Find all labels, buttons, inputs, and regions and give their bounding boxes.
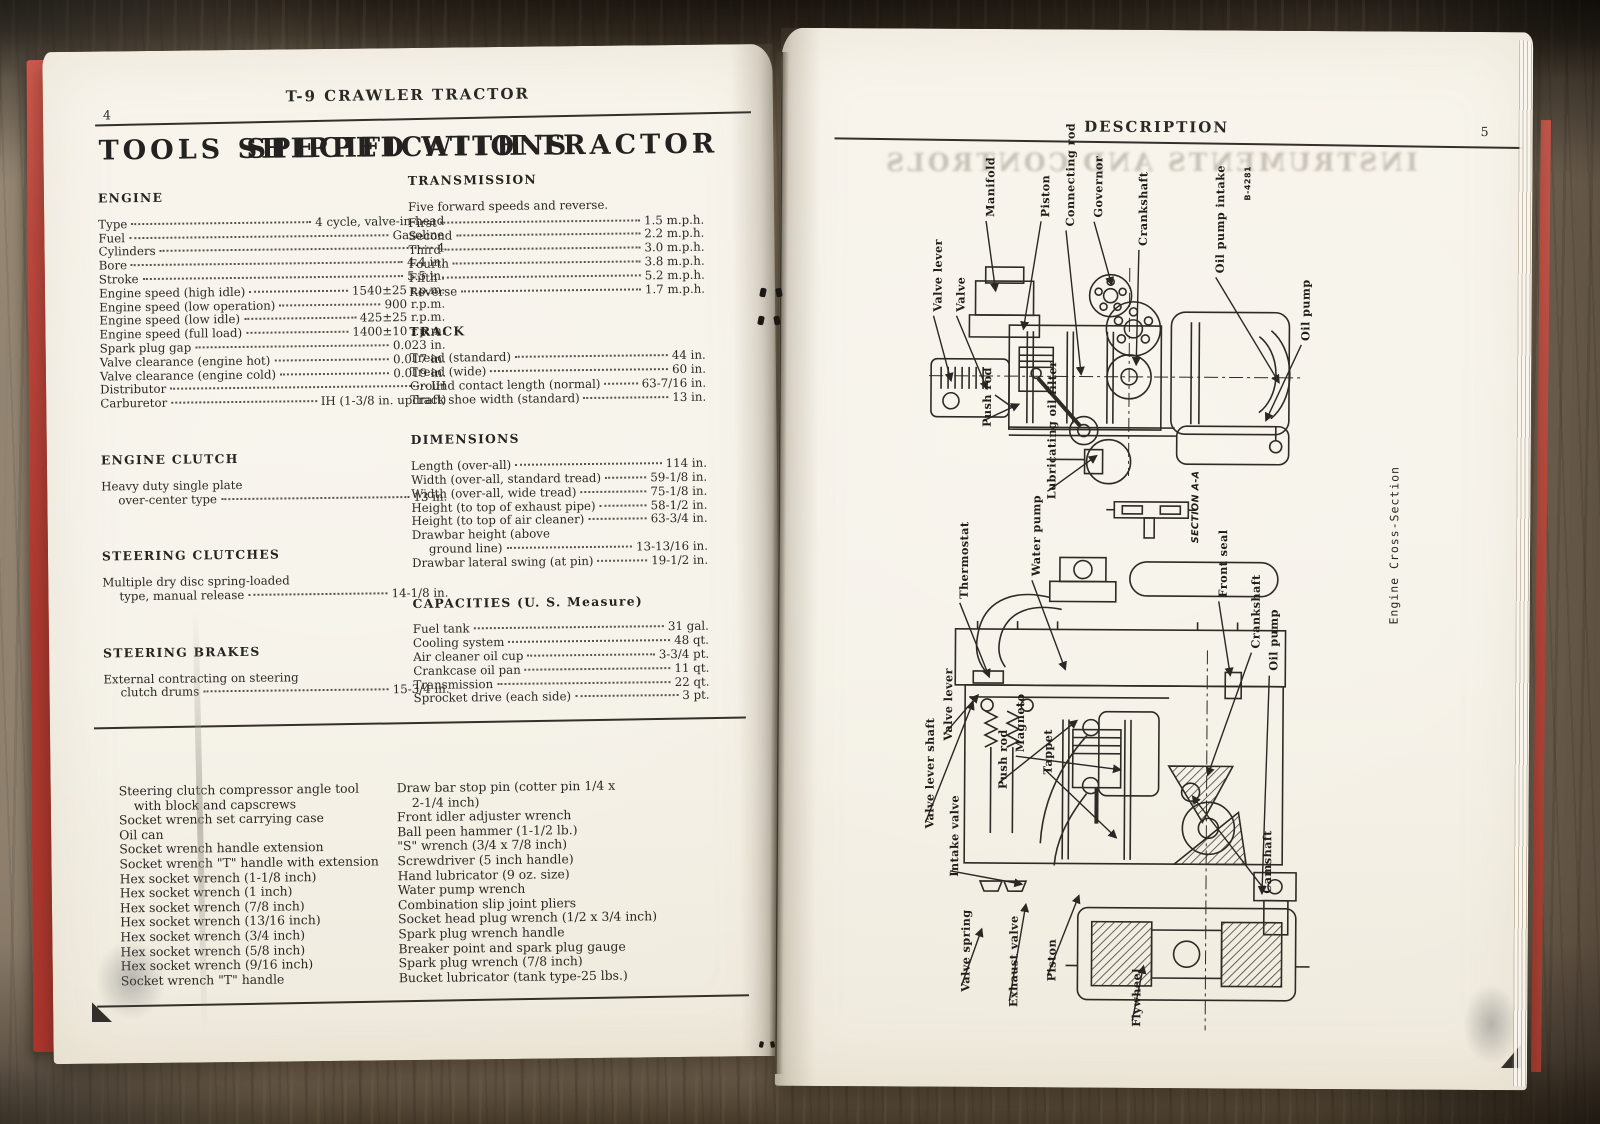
spec-heading: TRANSMISSION	[408, 171, 704, 188]
dot-leader	[506, 545, 632, 548]
spec-intro: Five forward speeds and reverse.	[408, 197, 704, 214]
diagram-overlay: ManifoldPistonConnecting rodGovernorCran…	[775, 28, 1533, 1091]
dot-leader	[129, 234, 389, 239]
dot-leader	[604, 382, 637, 384]
spec-label: Crankcase oil pan	[413, 664, 521, 679]
spec-value: 19-1/2 in.	[651, 553, 708, 567]
dot-leader	[445, 247, 640, 251]
dot-leader	[474, 625, 664, 629]
tools-rule-top	[94, 717, 746, 730]
diagram-label-tappet: Tappet	[1042, 729, 1054, 774]
spec-row: Reverse1.7 m.p.h.	[409, 282, 705, 299]
diagram-label-camshaft: Camshaft	[1261, 830, 1273, 894]
spec-section: STEERING CLUTCHESMultiple dry disc sprin…	[102, 546, 449, 604]
spec-heading: ENGINE CLUTCH	[101, 450, 447, 468]
spec-heading: TRACK	[409, 322, 705, 339]
spec-label: clutch drums	[120, 686, 199, 701]
spec-row: Sprocket drive (each side)3 pt.	[414, 689, 710, 706]
dot-leader	[456, 233, 640, 237]
dot-leader	[597, 559, 647, 562]
dot-leader	[131, 261, 403, 266]
dot-leader	[170, 385, 427, 390]
diagram-label-intake-valve: Intake valve	[948, 795, 960, 877]
spec-label: Fifth	[409, 271, 438, 285]
diagram-label-crankshaft-bottom: Crankshaft	[1249, 574, 1261, 648]
diagram-label-piston-bottom: Piston	[1045, 939, 1057, 982]
engine-cross-section-art	[775, 28, 1533, 1091]
spec-section: STEERING BRAKESExternal contracting on s…	[103, 642, 450, 700]
corner-smudge-right	[1463, 984, 1519, 1064]
diagram-label-lubricating-oil-filter: Lubricating oil filter	[1045, 361, 1058, 500]
dot-leader	[525, 667, 671, 671]
spec-label: Reverse	[409, 285, 457, 299]
tool-item-text: Bucket lubricator (tank type-25 lbs.)	[399, 968, 699, 986]
spec-value: 5.2 m.p.h.	[645, 268, 705, 282]
dot-leader	[249, 290, 348, 293]
spec-heading: ENGINE	[98, 188, 444, 206]
diagram-label-valve-spring: Valve spring	[959, 909, 972, 992]
header-rule-left	[95, 111, 751, 126]
spec-row: CarburetorIH (1-3/8 in. updraft)	[100, 394, 446, 412]
diagram-label-governor: Governor	[1092, 156, 1104, 218]
spec-row: Track shoe width (standard)13 in.	[410, 390, 706, 407]
dot-leader	[131, 221, 311, 225]
spec-section: CAPACITIES (U. S. Measure)Fuel tank31 ga…	[412, 593, 709, 706]
spec-value: 63-3/4 in.	[651, 512, 708, 526]
dot-leader	[279, 303, 380, 306]
spec-value: 3 pt.	[682, 689, 709, 703]
spec-section: TRANSMISSIONFive forward speeds and reve…	[408, 171, 705, 300]
spec-value: 11 qt.	[674, 661, 709, 675]
spec-section: TRACKTread (standard)44 in.Tread (wide)6…	[409, 322, 706, 407]
spec-row: clutch drums15-3/4 in.	[103, 683, 449, 701]
tool-item: Steering clutch compressor angle toolwit…	[119, 781, 399, 813]
dot-leader	[244, 317, 356, 320]
dot-leader	[515, 354, 668, 358]
diagram-label-magneto: Magneto	[1014, 693, 1026, 752]
diagram-label-water-pump: Water pump	[1030, 495, 1042, 576]
spec-section: ENGINEType4 cycle, valve-in-headFuelGaso…	[98, 188, 446, 412]
dot-leader	[575, 694, 678, 697]
tools-col-left: Steering clutch compressor angle toolwit…	[119, 781, 401, 988]
diagram-label-oil-pump-bottom: Oil pump	[1267, 609, 1279, 671]
dot-leader	[274, 358, 389, 361]
corner-smudge-left	[96, 940, 166, 1020]
dot-leader	[221, 496, 410, 500]
dot-leader	[203, 689, 388, 693]
diagram-label-fig-number: B-4281	[1242, 166, 1254, 201]
red-cover-edge-right	[1531, 120, 1551, 1072]
spec-col-left: ENGINEType4 cycle, valve-in-headFuelGaso…	[98, 188, 450, 701]
dot-leader	[453, 260, 641, 264]
diagram-label-connecting-rod: Connecting rod	[1064, 123, 1077, 227]
spec-label: Carburetor	[100, 397, 167, 412]
diagram-label-push-rod-bottom: Push rod	[997, 729, 1009, 789]
staple	[759, 1041, 774, 1047]
dot-leader	[588, 518, 647, 521]
spec-row: Drawbar lateral swing (at pin)19-1/2 in.	[412, 553, 708, 570]
diagram-label-piston: Piston	[1039, 175, 1051, 218]
diagram-label-caption: Engine Cross-Section	[1388, 466, 1401, 625]
diagram-label-oil-pump-intake: Oil pump intake	[1214, 165, 1227, 273]
spec-value: 13 in.	[672, 390, 706, 404]
diagram-label-push-rod-top: Push rod	[981, 367, 993, 427]
dot-leader	[490, 368, 668, 372]
dot-leader	[600, 504, 647, 507]
spec-label: type, manual release	[119, 589, 244, 604]
dot-leader	[442, 274, 641, 278]
spec-label: Valve clearance (engine cold)	[100, 368, 276, 384]
diagram-label-manifold: Manifold	[984, 157, 996, 217]
dot-leader	[497, 681, 670, 685]
dot-leader	[515, 462, 661, 466]
spec-value: 60 in.	[672, 363, 706, 377]
dot-leader	[143, 275, 404, 280]
section-aa-part	[1106, 502, 1196, 539]
tools-col-right: Draw bar stop pin (cotter pin 1/4 x2-1/4…	[397, 778, 699, 986]
dot-leader	[246, 331, 348, 334]
spec-row: type, manual release14-1/8 in.	[102, 587, 448, 605]
dot-leader	[248, 592, 387, 596]
dot-leader	[508, 639, 670, 643]
diagram-label-valve-top: Valve	[955, 277, 967, 312]
dot-leader	[195, 344, 389, 348]
diagram-label-valve-lever-top: Valve lever	[932, 239, 944, 312]
spec-label: Type	[98, 218, 127, 232]
dot-leader	[441, 219, 640, 223]
diagram-label-valve-lever-bottom: Valve lever	[942, 668, 954, 741]
spec-label: Fourth	[409, 258, 449, 272]
spec-row: over-center type13 in.	[101, 490, 447, 508]
spec-value: 1.7 m.p.h.	[645, 282, 705, 296]
spec-heading: DIMENSIONS	[411, 430, 707, 447]
left-page: 4 T-9 CRAWLER TRACTOR SPECIFICATIONS ENG…	[42, 44, 783, 1064]
tools-title: TOOLS SHIPPED WITH TRACTOR	[43, 128, 773, 167]
page-number-left: 4	[103, 107, 111, 122]
spec-heading: STEERING CLUTCHES	[102, 546, 448, 564]
dot-leader	[171, 400, 317, 404]
diagram-label-flywheel: Flywheel	[1130, 968, 1142, 1027]
spec-col-right: TRANSMISSIONFive forward speeds and reve…	[408, 171, 710, 706]
diagram-label-oil-pump-top: Oil pump	[1299, 279, 1311, 341]
photo-of-open-manual: 4 T-9 CRAWLER TRACTOR SPECIFICATIONS ENG…	[0, 0, 1600, 1124]
staple	[758, 316, 780, 325]
tools-rule-bottom	[97, 994, 749, 1007]
spec-label: Drawbar lateral swing (at pin)	[412, 555, 594, 571]
dot-leader	[527, 653, 655, 656]
spec-label: Sprocket drive (each side)	[414, 691, 572, 707]
diagram-label-crankshaft-top: Crankshaft	[1137, 172, 1149, 246]
spec-label: Cylinders	[98, 245, 155, 259]
dot-leader	[580, 490, 646, 493]
diagram-label-valve-lever-shaft: Valve lever shaft	[923, 718, 936, 829]
running-title-left: T-9 CRAWLER TRACTOR	[43, 82, 773, 108]
spec-value: 75-1/8 in.	[650, 484, 707, 498]
spec-section: DIMENSIONSLength (over-all)114 in.Width …	[411, 430, 709, 571]
diagram-label-front-seal: Front seal	[1217, 530, 1229, 598]
spec-label: over-center type	[118, 493, 217, 508]
spec-section: ENGINE CLUTCHHeavy duty single plateover…	[101, 450, 448, 508]
diagram-label-thermostat: Thermostat	[958, 521, 970, 598]
spec-heading: CAPACITIES (U. S. Measure)	[412, 593, 708, 610]
diagram-label-exhaust-valve: Exhaust valve	[1007, 915, 1020, 1007]
spec-label: Track shoe width (standard)	[410, 392, 580, 408]
tool-item: Bucket lubricator (tank type-25 lbs.)	[399, 968, 699, 986]
dot-leader	[584, 396, 669, 399]
staple	[760, 288, 782, 297]
spec-heading: STEERING BRAKES	[103, 642, 449, 660]
dot-leader	[160, 247, 433, 252]
dot-leader	[280, 372, 389, 375]
tool-item: Draw bar stop pin (cotter pin 1/4 x2-1/4…	[397, 778, 697, 811]
right-page: INSTRUMENTS AND CONTROLS DESCRIPTION 5	[775, 28, 1533, 1091]
diagram-label-section-aa: SECTION A-A	[1190, 471, 1202, 544]
dot-leader	[461, 288, 641, 292]
dot-leader	[605, 476, 646, 478]
